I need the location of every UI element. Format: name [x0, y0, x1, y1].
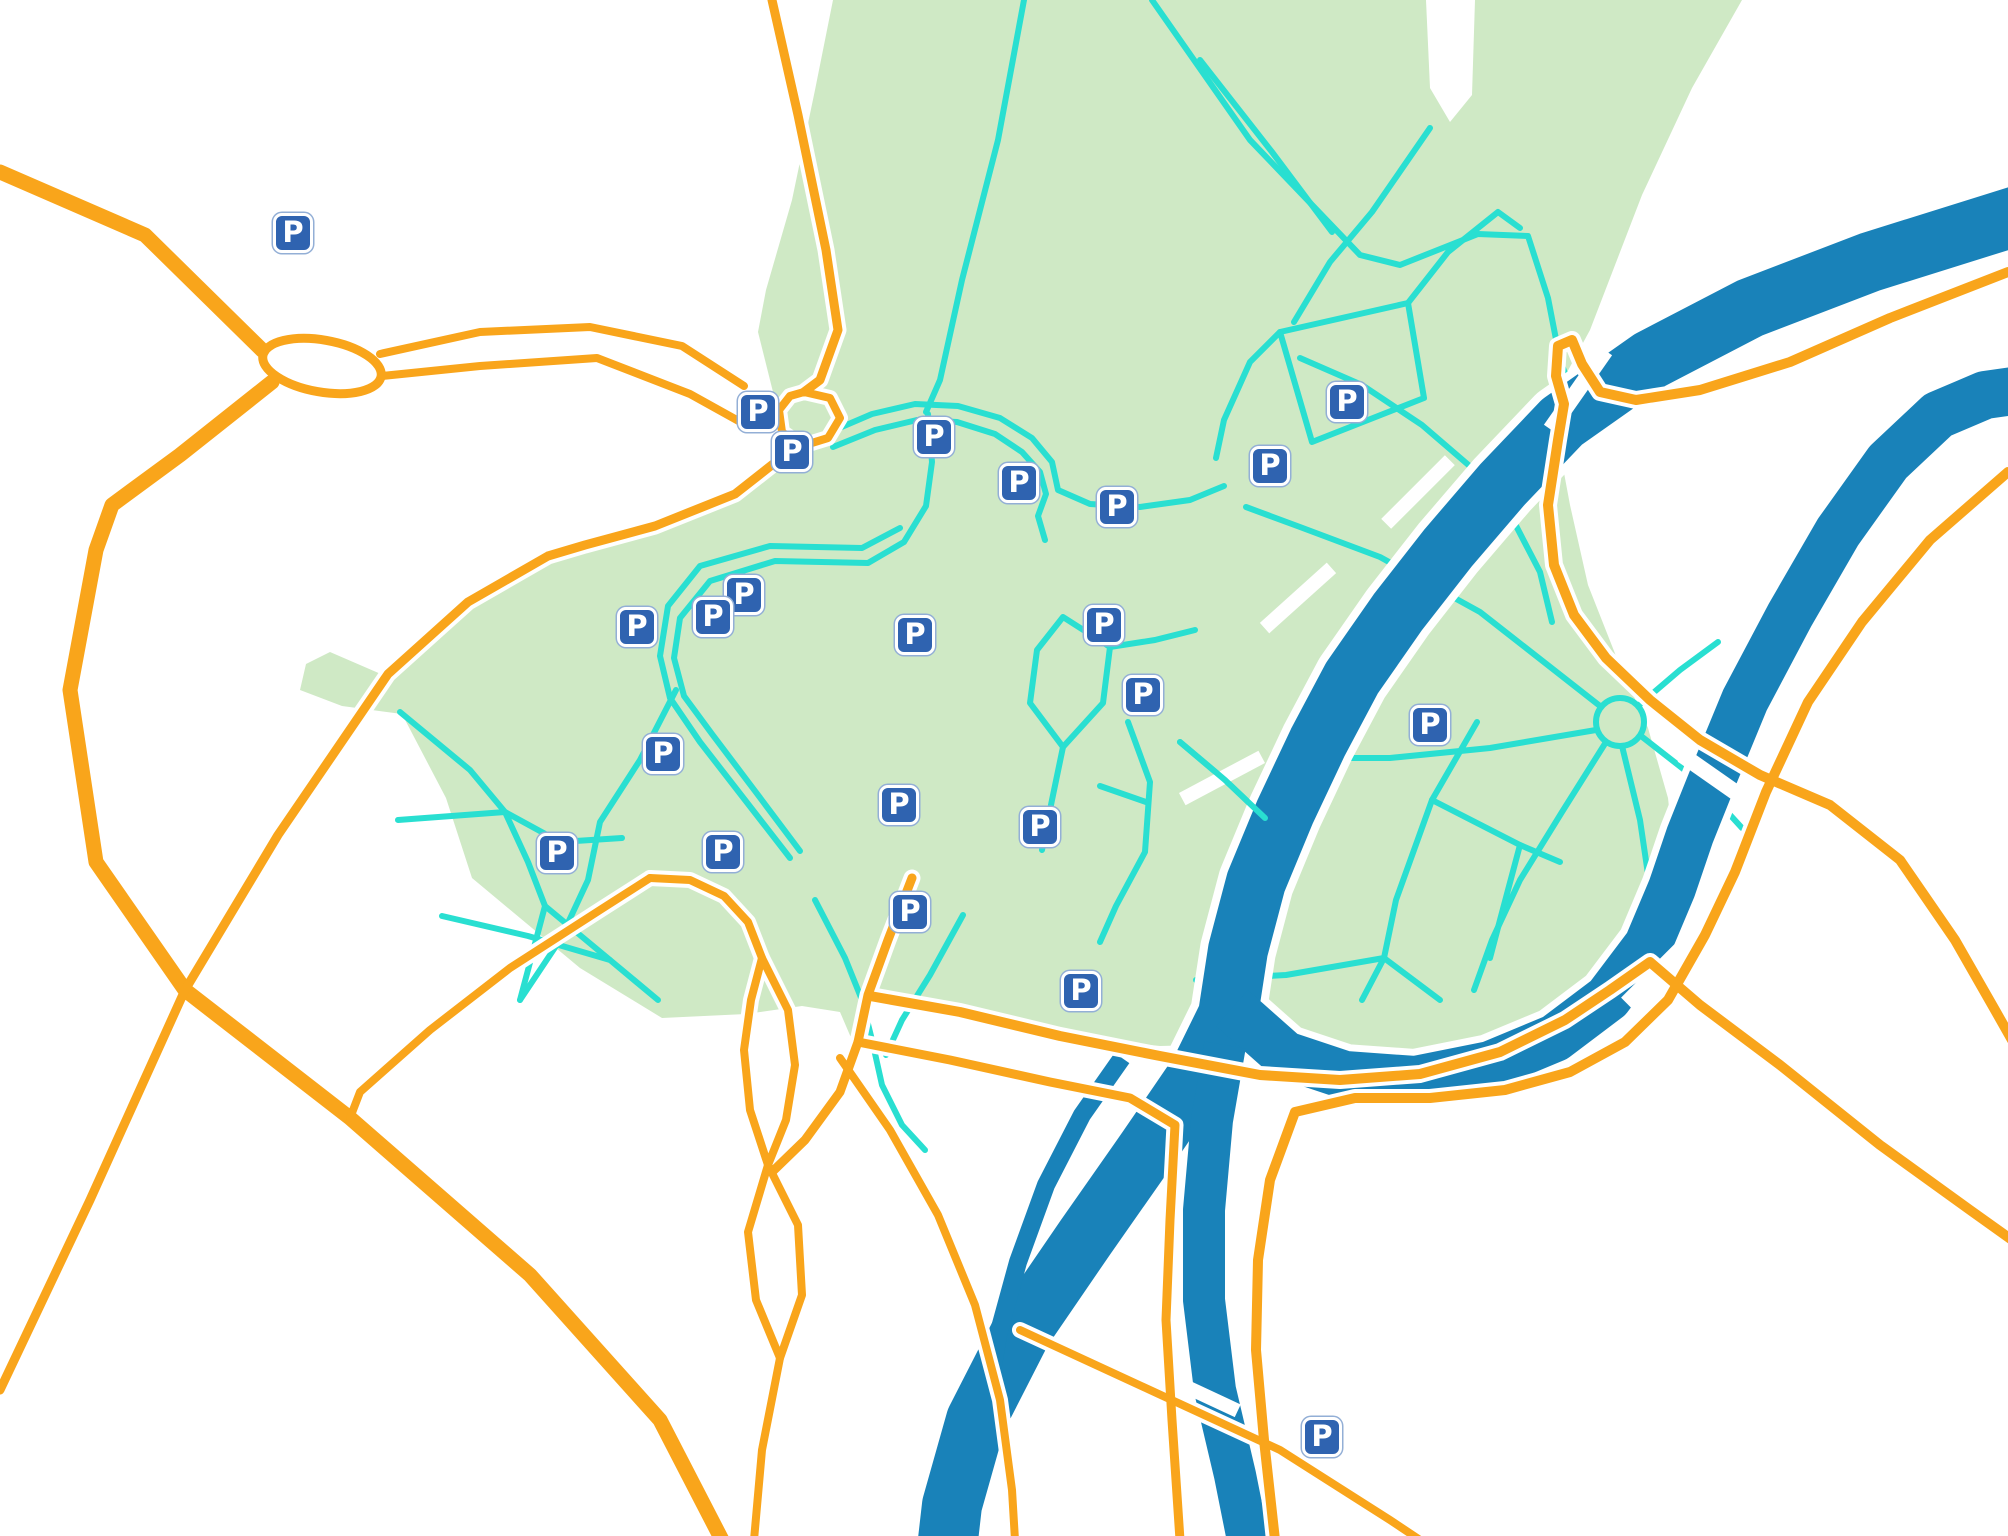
parking-marker[interactable]: P	[1061, 971, 1101, 1011]
parking-marker[interactable]: P	[879, 785, 919, 825]
parking-marker[interactable]: P	[1123, 675, 1163, 715]
parking-marker[interactable]: P	[537, 833, 577, 873]
parking-marker[interactable]: P	[999, 463, 1039, 503]
parking-marker[interactable]: P	[895, 615, 935, 655]
parking-marker[interactable]: P	[914, 417, 954, 457]
parking-marker[interactable]: P	[1410, 705, 1450, 745]
park-area	[300, 0, 1742, 1056]
parking-marker[interactable]: P	[617, 607, 657, 647]
parking-marker[interactable]: P	[1327, 382, 1367, 422]
parking-marker[interactable]: P	[1250, 446, 1290, 486]
parking-marker[interactable]: P	[772, 432, 812, 472]
parking-marker[interactable]: P	[1020, 807, 1060, 847]
parking-marker[interactable]: P	[738, 392, 778, 432]
parking-marker[interactable]: P	[273, 213, 313, 253]
parking-marker[interactable]: P	[1097, 487, 1137, 527]
parking-marker[interactable]: P	[693, 597, 733, 637]
parking-marker[interactable]: P	[890, 892, 930, 932]
parking-marker[interactable]: P	[703, 832, 743, 872]
parking-marker[interactable]: P	[643, 734, 683, 774]
parking-marker[interactable]: P	[1084, 605, 1124, 645]
map-canvas[interactable]: PPPPPPPPPPPPPPPPPPPPPPP	[0, 0, 2008, 1536]
parking-marker[interactable]: P	[1302, 1417, 1342, 1457]
